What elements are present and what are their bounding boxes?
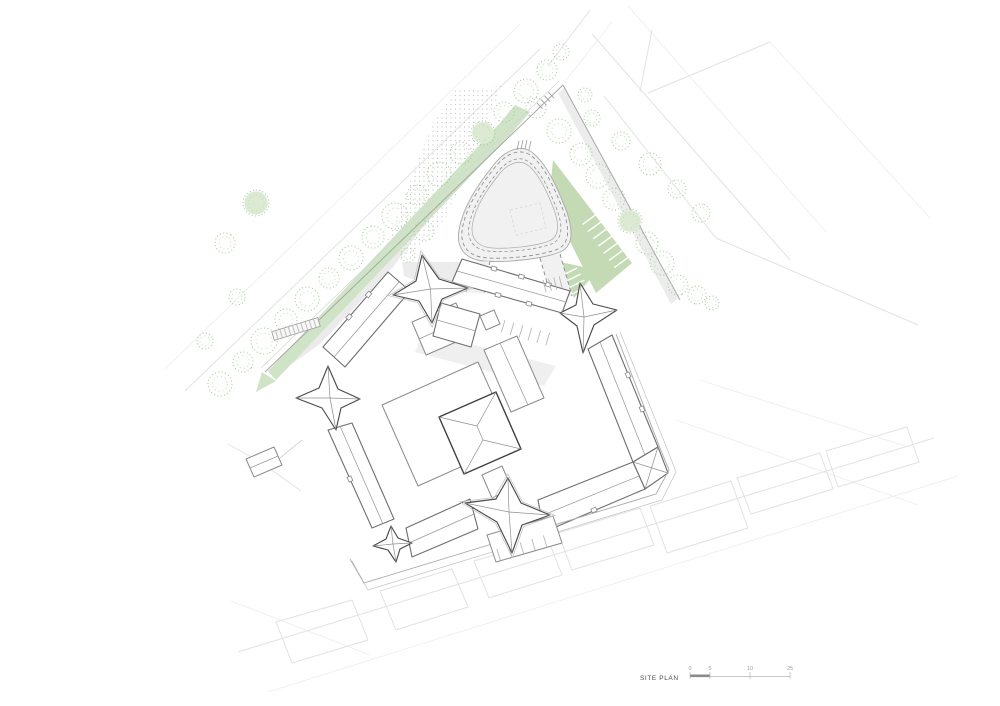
site-plan-sheet: SITE PLAN 0 5 10 25 [0, 0, 1000, 706]
tree-icon [578, 88, 593, 103]
tree-icon [686, 284, 708, 306]
context-buildings [276, 427, 919, 663]
wing-west [328, 423, 394, 528]
tree-icon [535, 58, 559, 82]
kiosk [480, 310, 500, 330]
sheet-title: SITE PLAN [640, 675, 679, 682]
crossing-hatch [517, 92, 554, 150]
tree-icon [243, 190, 269, 216]
tree-icon [635, 149, 666, 180]
tree-icon [318, 267, 340, 289]
scale-label-5: 5 [708, 666, 711, 672]
tree-icon [522, 94, 550, 122]
tree-icon [290, 282, 323, 315]
title-block: SITE PLAN [640, 675, 679, 682]
wing-east [588, 335, 658, 462]
scale-label-0: 0 [688, 666, 691, 672]
scale-bar-segment [690, 675, 710, 678]
tree-icon [248, 325, 280, 357]
context-streets-and-parcels [165, 6, 958, 692]
tree-icon [195, 331, 215, 351]
tree-icon [612, 132, 631, 151]
pavilion-roof [296, 366, 360, 430]
tree-icon [229, 348, 257, 376]
tree-icon [702, 293, 721, 312]
tree-icon [545, 117, 573, 145]
scale-label-10: 10 [747, 666, 753, 672]
tree-icon [211, 229, 239, 257]
site-plan-drawing: SITE PLAN 0 5 10 25 [0, 0, 1000, 706]
tree-icon [227, 287, 248, 308]
building-complex [246, 251, 676, 590]
wing-southwest [406, 499, 478, 557]
tree-icon [208, 372, 232, 396]
tree-icon [690, 202, 713, 225]
tree-icon [360, 224, 386, 250]
scale-label-25: 25 [787, 666, 793, 672]
scale-bar: 0 5 10 25 [688, 666, 793, 679]
